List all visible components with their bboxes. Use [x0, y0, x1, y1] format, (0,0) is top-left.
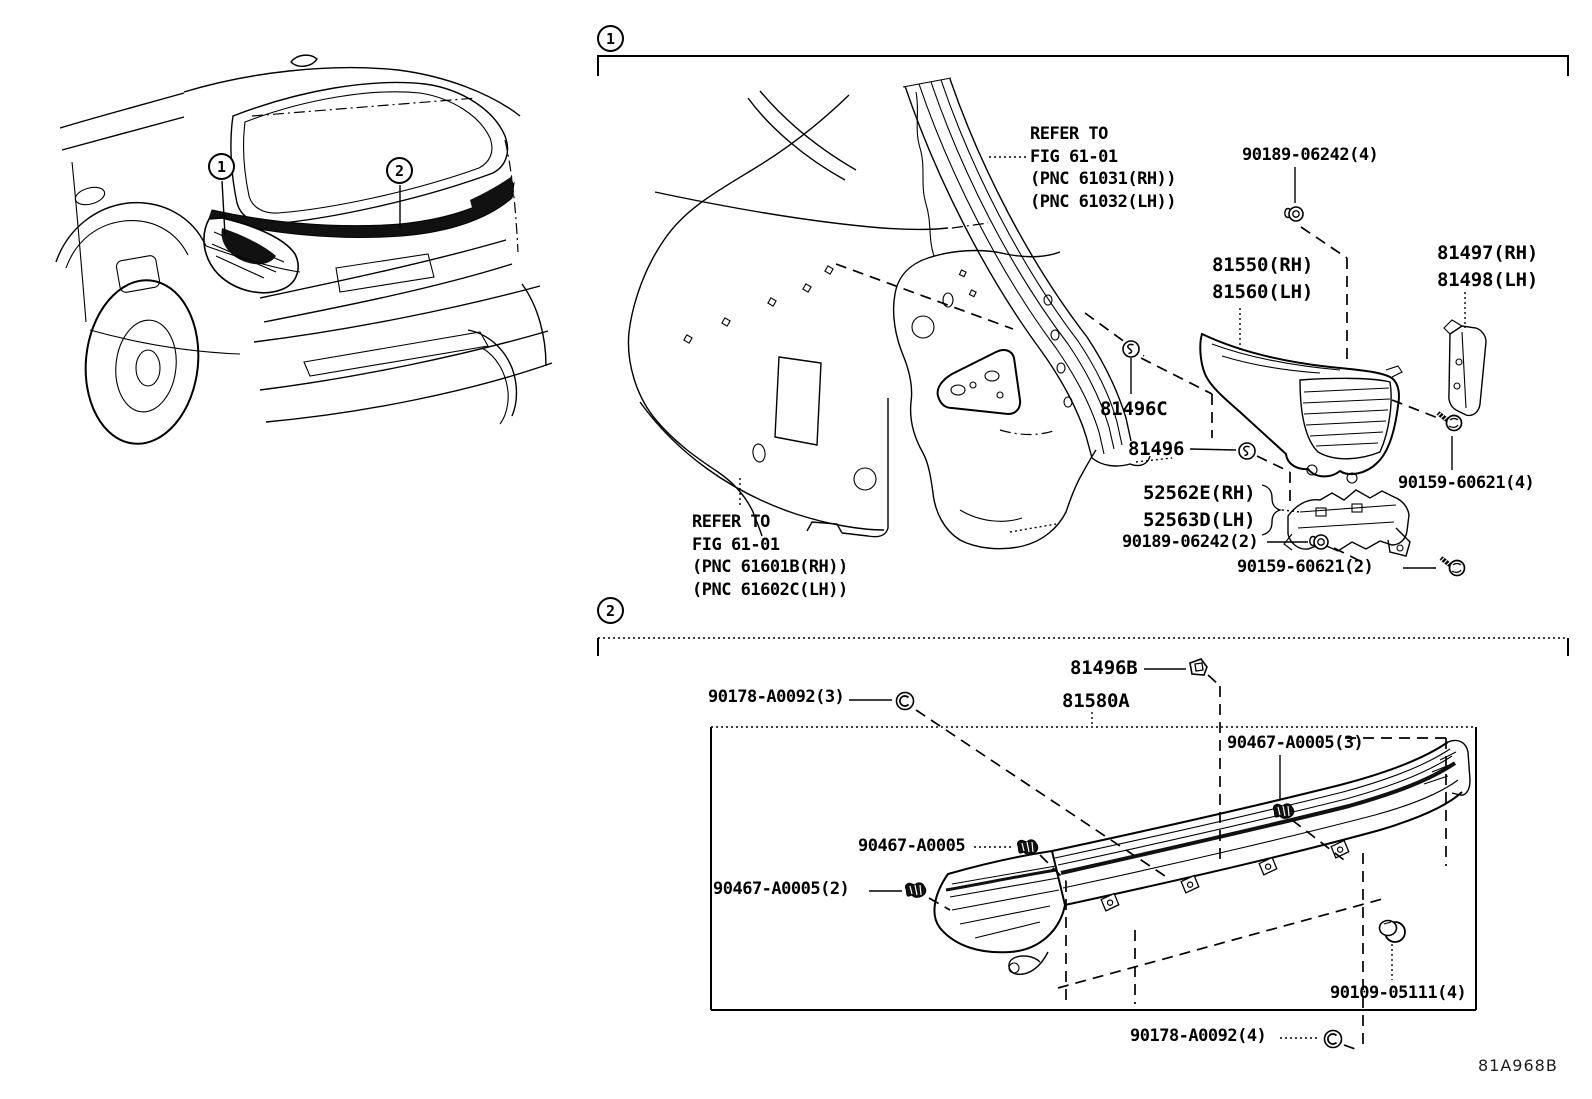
parts-diagram-page: 1 2 1 2 REFER TO FIG 61-01 (PNC 61031(RH… — [0, 0, 1592, 1099]
grommet-icon-81496 — [1239, 443, 1255, 459]
part-label-81496b: 81496B — [1070, 655, 1137, 682]
section2-badge: 2 — [597, 597, 624, 624]
section1-bracket-line — [598, 56, 1568, 76]
part-label-90178-a0092-3: 90178-A0092(3) — [708, 687, 844, 708]
part-label-81550-81560: 81550(RH) 81560(LH) — [1212, 252, 1313, 306]
refer-note-quarter: REFER TO FIG 61-01 (PNC 61601B(RH)) (PNC… — [692, 511, 848, 601]
part-label-90159-60621-4: 90159-60621(4) — [1398, 473, 1534, 494]
part-label-90189-06242-4: 90189-06242(4) — [1242, 145, 1378, 166]
part-label-90109-05111-4: 90109-05111(4) — [1330, 983, 1466, 1004]
section1-badge: 1 — [597, 25, 624, 52]
lamp-pocket-art — [894, 251, 1096, 549]
quarter-panel-art — [628, 91, 988, 537]
overview-callout-2: 2 — [386, 157, 413, 184]
part-label-81580a: 81580A — [1062, 688, 1129, 715]
part-label-90467-a0005-2: 90467-A0005(2) — [713, 879, 849, 900]
screw-icon-90159-2 — [1441, 558, 1465, 576]
grommet-icon-81496b — [1190, 659, 1207, 675]
part-label-81497-81498: 81497(RH) 81498(LH) — [1437, 240, 1538, 294]
part-label-52562e-52563d: 52562E(RH) 52563D(LH) — [1143, 480, 1255, 534]
refer-note-pillar: REFER TO FIG 61-01 (PNC 61031(RH)) (PNC … — [1030, 123, 1176, 213]
part-label-90178-a0092-4: 90178-A0092(4) — [1130, 1026, 1266, 1047]
figure-code: 81A968B — [1478, 1056, 1558, 1075]
part-label-90159-60621-2: 90159-60621(2) — [1237, 557, 1373, 578]
car-overview-art — [56, 55, 552, 449]
parts-box — [711, 727, 1476, 1010]
part-label-90189-06242-2: 90189-06242(2) — [1122, 532, 1258, 553]
part-label-81496: 81496 — [1128, 436, 1184, 463]
tail-lamp-art — [1200, 334, 1402, 483]
screw-icon-90159-4 — [1438, 413, 1462, 431]
bolt-icon-90109 — [1380, 921, 1406, 943]
part-label-81496c: 81496C — [1100, 396, 1167, 423]
mount-bracket-art — [1284, 490, 1410, 556]
lamp-cover-art — [1444, 320, 1486, 415]
part-label-90467-a0005: 90467-A0005 — [858, 836, 965, 857]
screw-icon-90189-4 — [1285, 207, 1303, 221]
clip-icon-90178-4 — [1325, 1031, 1342, 1048]
clip-icon-90467 — [1017, 840, 1037, 855]
clip-icon-90178-3 — [897, 693, 914, 710]
grommet-icon-81496c — [1123, 341, 1139, 357]
clip-icon-90467-2 — [905, 883, 925, 898]
overview-callout-1: 1 — [208, 153, 235, 180]
section2-bracket-line — [598, 638, 1568, 656]
part-label-90467-a0005-3: 90467-A0005(3) — [1227, 733, 1363, 754]
clip-icon-90467-3 — [1273, 804, 1293, 819]
